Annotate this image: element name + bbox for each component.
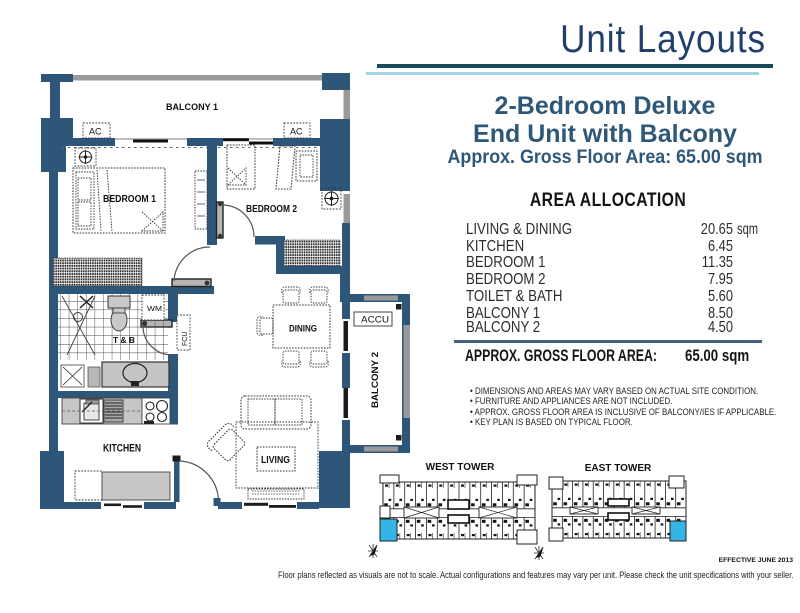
- svg-text:AC: AC: [89, 127, 102, 137]
- svg-text:ACCU: ACCU: [361, 315, 389, 325]
- svg-text:AC: AC: [290, 127, 303, 137]
- svg-text:DINING: DINING: [289, 324, 317, 335]
- svg-text:BALCONY 2: BALCONY 2: [370, 352, 381, 408]
- svg-text:BEDROOM 2: BEDROOM 2: [246, 203, 297, 215]
- svg-text:WM: WM: [147, 304, 162, 313]
- svg-text:KITCHEN: KITCHEN: [103, 443, 141, 455]
- svg-text:T & B: T & B: [113, 335, 135, 345]
- svg-text:BALCONY 1: BALCONY 1: [166, 102, 219, 113]
- svg-text:FCU: FCU: [182, 332, 189, 346]
- svg-text:BEDROOM 1: BEDROOM 1: [103, 193, 156, 205]
- svg-text:LIVING: LIVING: [261, 454, 290, 466]
